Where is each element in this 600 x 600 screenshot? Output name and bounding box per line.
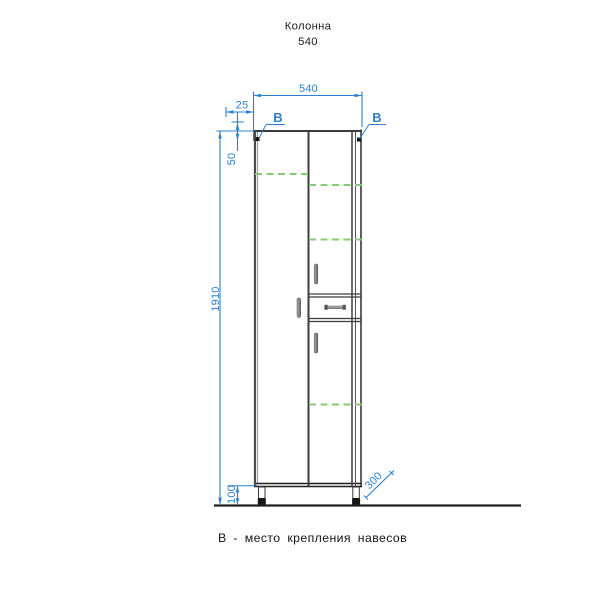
dim-height-label: 1910 <box>210 286 222 311</box>
marker-label-right: B <box>372 110 381 125</box>
drawer-handle-left-cap <box>324 305 327 310</box>
left-leg-foot <box>258 498 266 505</box>
dim-offset-y-arrow-bottom <box>236 134 239 142</box>
marker-label-left: B <box>273 110 282 125</box>
dim-leg-label: 100 <box>226 485 238 504</box>
dim-offset-y-label: 50 <box>226 153 238 166</box>
left-door-handle <box>297 298 301 318</box>
drawing-title: Колонна <box>285 21 332 33</box>
upper-door-handle <box>314 264 318 284</box>
lower-door-handle <box>314 333 318 353</box>
dim-offset-x-arrow-left <box>226 110 234 113</box>
dim-height-arrow-bottom <box>218 498 221 506</box>
dim-depth-label: 300 <box>363 470 385 492</box>
right-leg <box>353 487 360 499</box>
drawer-handle-bar <box>326 306 344 309</box>
dim-offset-y-arrow-top <box>236 123 239 131</box>
caption-text: В - место крепления навесов <box>218 531 407 545</box>
drawing-title-size: 540 <box>298 36 318 48</box>
dim-offset-x-label: 25 <box>236 100 249 112</box>
right-marker-leader <box>360 125 387 140</box>
right-leg-foot <box>352 498 360 505</box>
dim-width-arrow-left <box>254 94 262 97</box>
technical-drawing-canvas: Колонна 540 B B <box>0 0 600 600</box>
drawer-handle-right-cap <box>343 305 346 310</box>
left-leg <box>259 487 266 499</box>
drawing-page: Колонна 540 B B <box>0 0 600 600</box>
dim-width-label: 540 <box>299 83 318 95</box>
drawer-handle <box>324 305 345 310</box>
dim-width-arrow-right <box>355 94 363 97</box>
dim-height <box>217 131 255 505</box>
dim-height-arrow-top <box>218 131 221 139</box>
